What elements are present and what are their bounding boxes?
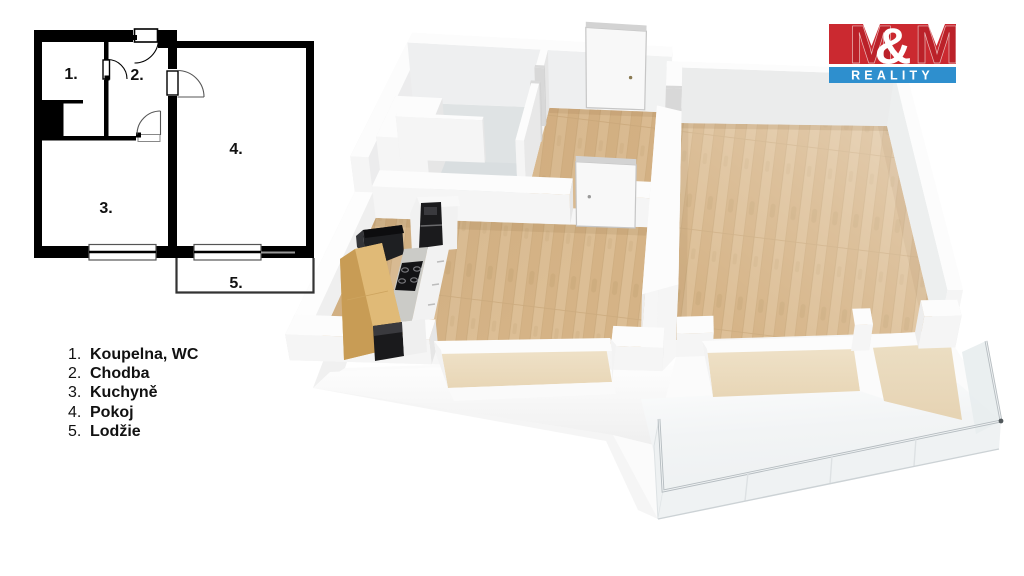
svg-text:1.: 1. — [64, 66, 77, 83]
svg-text:4.: 4. — [229, 141, 242, 158]
svg-text:REALITY: REALITY — [851, 69, 934, 83]
svg-text:5.: 5. — [229, 275, 242, 292]
svg-text:3.: 3. — [99, 200, 112, 217]
svg-text:2.: 2. — [130, 67, 143, 84]
svg-text:&: & — [875, 24, 912, 75]
